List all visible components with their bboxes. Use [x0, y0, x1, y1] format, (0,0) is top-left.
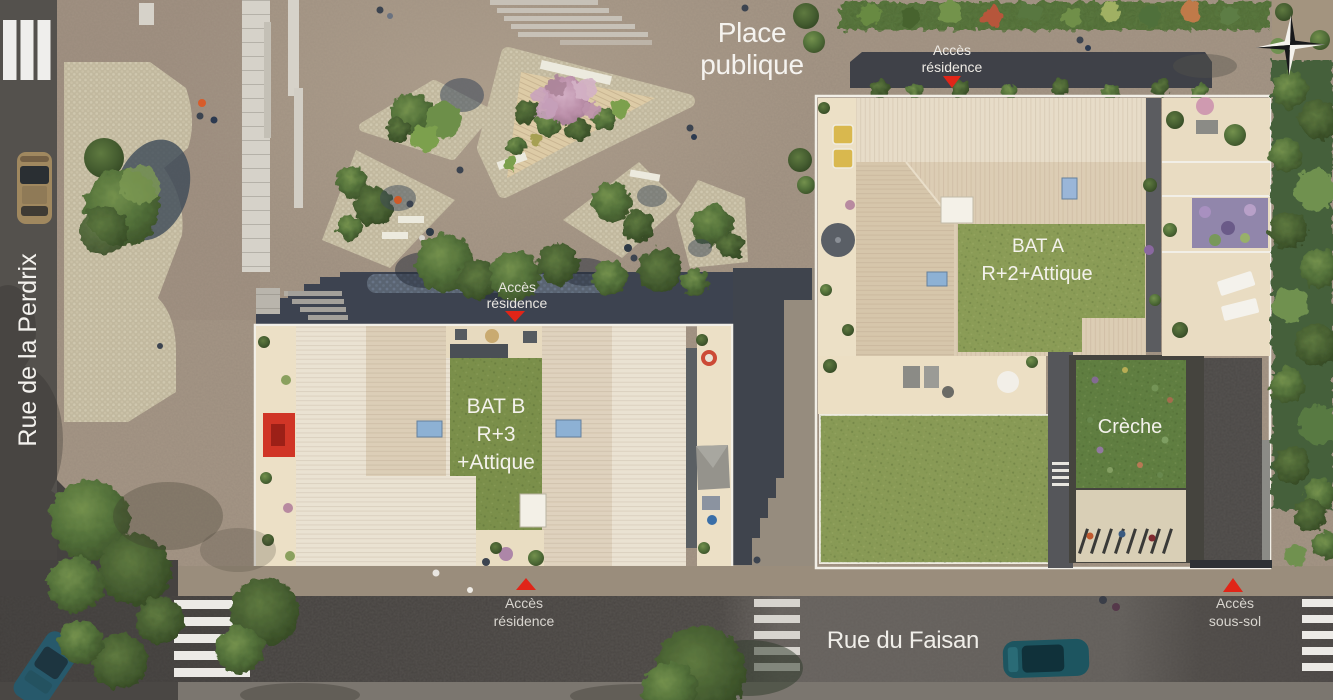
svg-text:Accès: Accès — [505, 595, 543, 611]
svg-text:sous-sol: sous-sol — [1209, 613, 1261, 629]
svg-text:résidence: résidence — [922, 59, 983, 75]
svg-text:+Attique: +Attique — [457, 451, 535, 474]
svg-text:Crèche: Crèche — [1098, 416, 1162, 438]
svg-text:R+2+Attique: R+2+Attique — [981, 263, 1092, 285]
svg-text:Rue du Faisan: Rue du Faisan — [827, 627, 979, 654]
svg-text:résidence: résidence — [494, 613, 555, 629]
svg-text:Accès: Accès — [498, 279, 536, 295]
svg-text:Rue de la Perdrix: Rue de la Perdrix — [14, 253, 42, 447]
svg-text:BAT B: BAT B — [467, 395, 526, 418]
svg-text:R+3: R+3 — [476, 423, 515, 446]
svg-text:Accès: Accès — [1216, 595, 1254, 611]
svg-text:Accès: Accès — [933, 42, 971, 58]
svg-text:BAT A: BAT A — [1012, 236, 1064, 257]
svg-text:Place: Place — [718, 17, 787, 48]
svg-text:résidence: résidence — [487, 295, 548, 311]
svg-text:publique: publique — [700, 49, 803, 80]
